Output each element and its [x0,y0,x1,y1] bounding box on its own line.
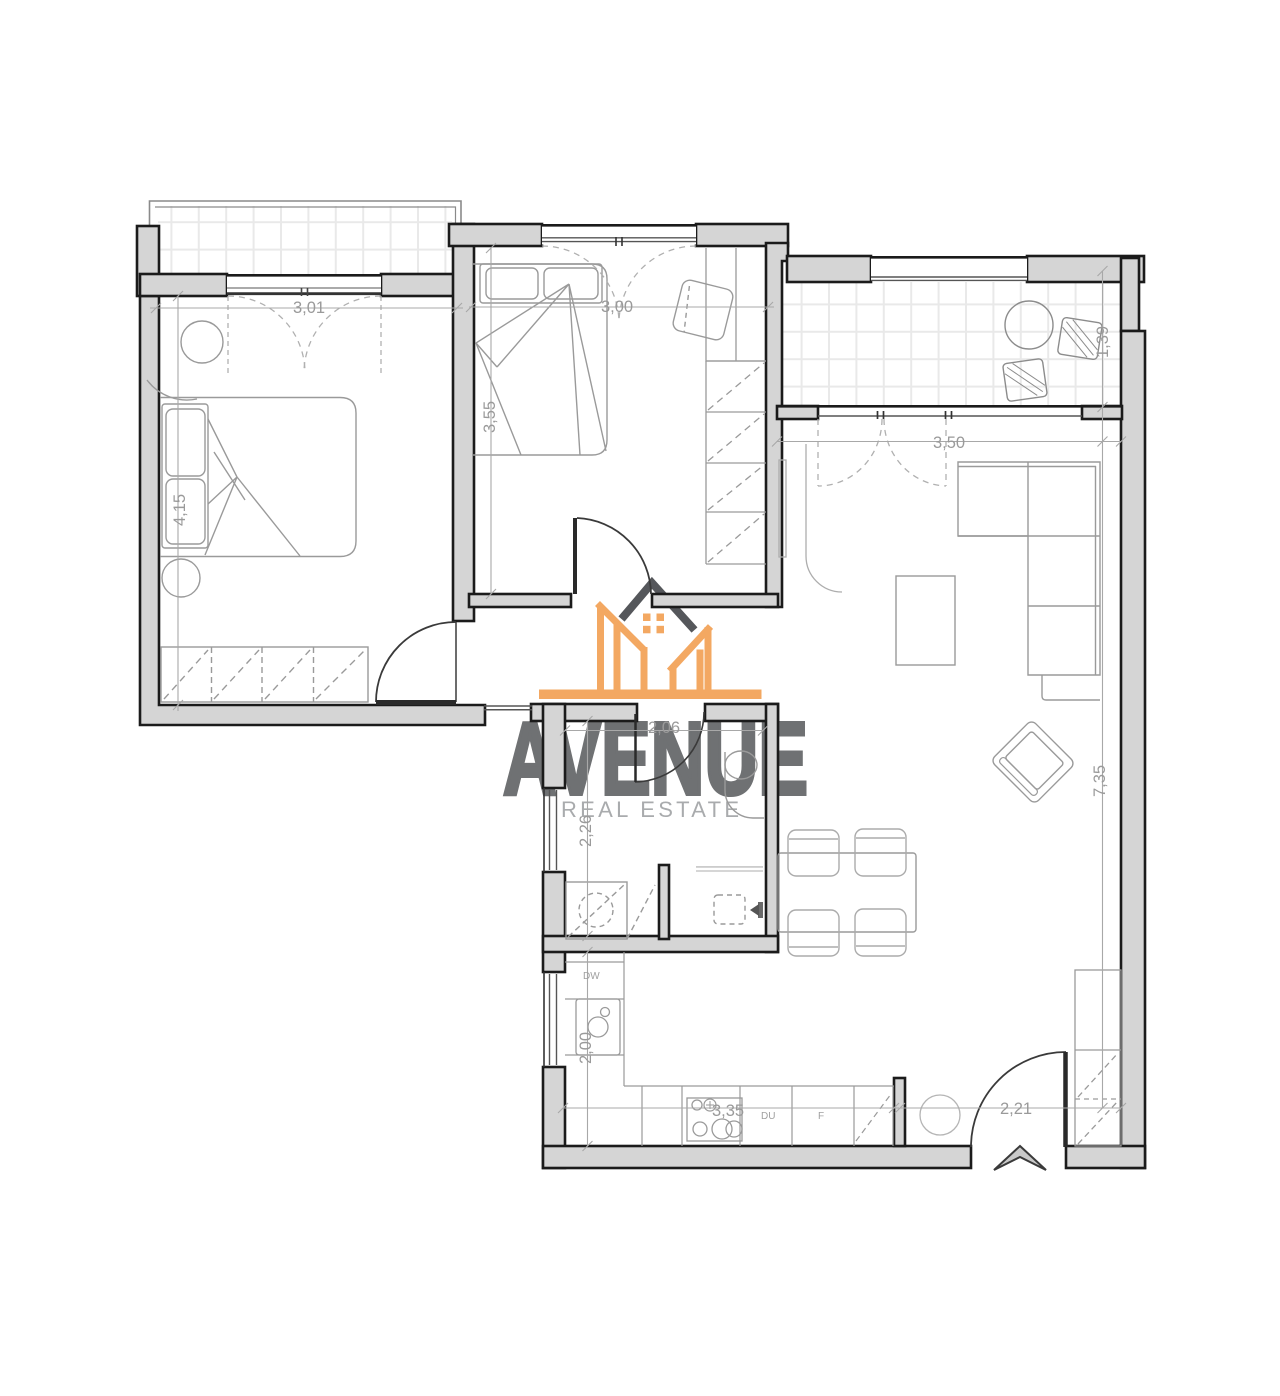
svg-text:4,15: 4,15 [171,494,189,526]
svg-text:DU: DU [761,1111,775,1122]
svg-text:3,35: 3,35 [712,1102,744,1120]
svg-text:2,21: 2,21 [1000,1100,1032,1118]
svg-text:3,00: 3,00 [601,298,633,316]
svg-text:3,50: 3,50 [933,434,965,452]
svg-text:DW: DW [583,971,600,982]
svg-text:2,00: 2,00 [577,1032,595,1064]
svg-text:2,06: 2,06 [648,719,680,737]
svg-text:2,26: 2,26 [577,815,595,847]
svg-text:3,01: 3,01 [293,299,325,317]
svg-text:7,35: 7,35 [1091,765,1109,797]
svg-text:F: F [818,1111,824,1122]
svg-text:3,55: 3,55 [481,401,499,433]
svg-text:1,39: 1,39 [1094,326,1112,358]
